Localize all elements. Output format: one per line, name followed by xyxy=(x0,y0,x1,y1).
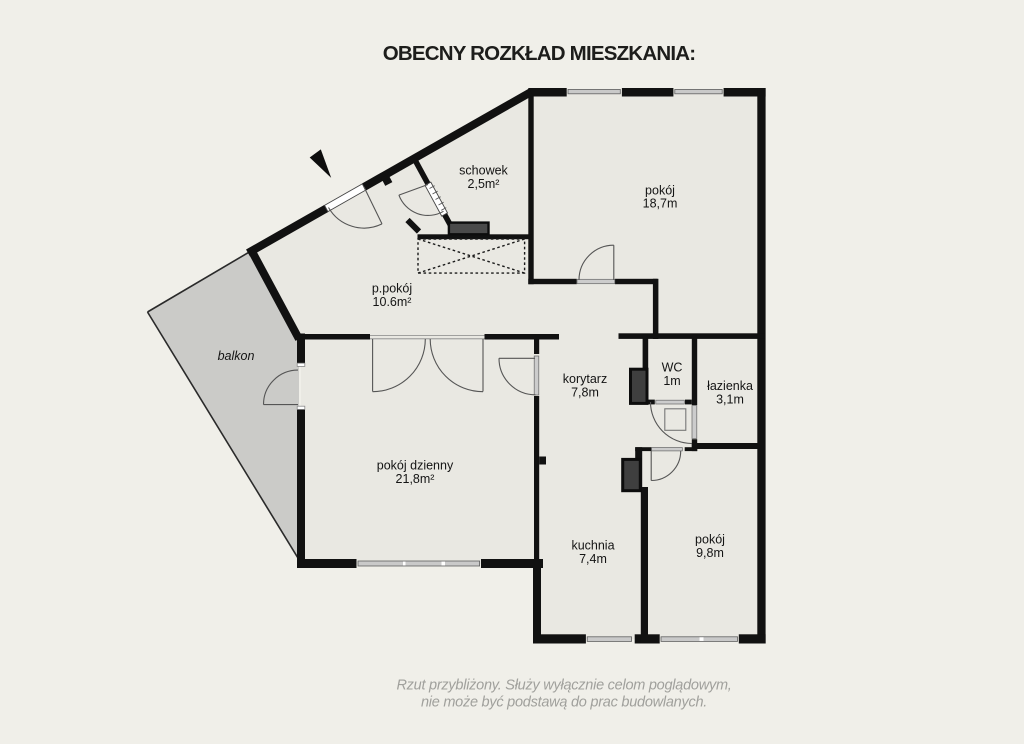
svg-text:1m: 1m xyxy=(663,374,680,388)
svg-text:10.6m²: 10.6m² xyxy=(373,295,412,309)
svg-text:pokój dzienny: pokój dzienny xyxy=(377,459,454,473)
svg-text:OBECNY ROZKŁAD MIESZKANIA:: OBECNY ROZKŁAD MIESZKANIA: xyxy=(383,42,696,65)
svg-text:21,8m²: 21,8m² xyxy=(396,472,435,486)
svg-text:kuchnia: kuchnia xyxy=(571,539,614,553)
svg-text:2,5m²: 2,5m² xyxy=(468,177,500,191)
svg-text:Rzut przybliżony. Służy wyłącz: Rzut przybliżony. Służy wyłącznie celom … xyxy=(396,678,731,694)
svg-text:p.pokój: p.pokój xyxy=(372,281,412,295)
svg-text:18,7m: 18,7m xyxy=(643,197,678,211)
svg-text:WC: WC xyxy=(662,361,683,375)
svg-text:9,8m: 9,8m xyxy=(696,546,724,560)
svg-text:3,1m: 3,1m xyxy=(716,392,744,406)
svg-text:pokój: pokój xyxy=(695,533,725,547)
svg-text:korytarz: korytarz xyxy=(563,372,607,386)
svg-text:7,4m: 7,4m xyxy=(579,552,607,566)
svg-text:łazienka: łazienka xyxy=(707,379,753,393)
svg-text:schowek: schowek xyxy=(459,164,508,178)
svg-text:nie może być podstawą do prac: nie może być podstawą do prac budowlanyc… xyxy=(421,695,707,711)
svg-text:pokój: pokój xyxy=(645,183,675,197)
svg-text:balkon: balkon xyxy=(218,349,255,363)
svg-text:7,8m: 7,8m xyxy=(571,385,599,399)
